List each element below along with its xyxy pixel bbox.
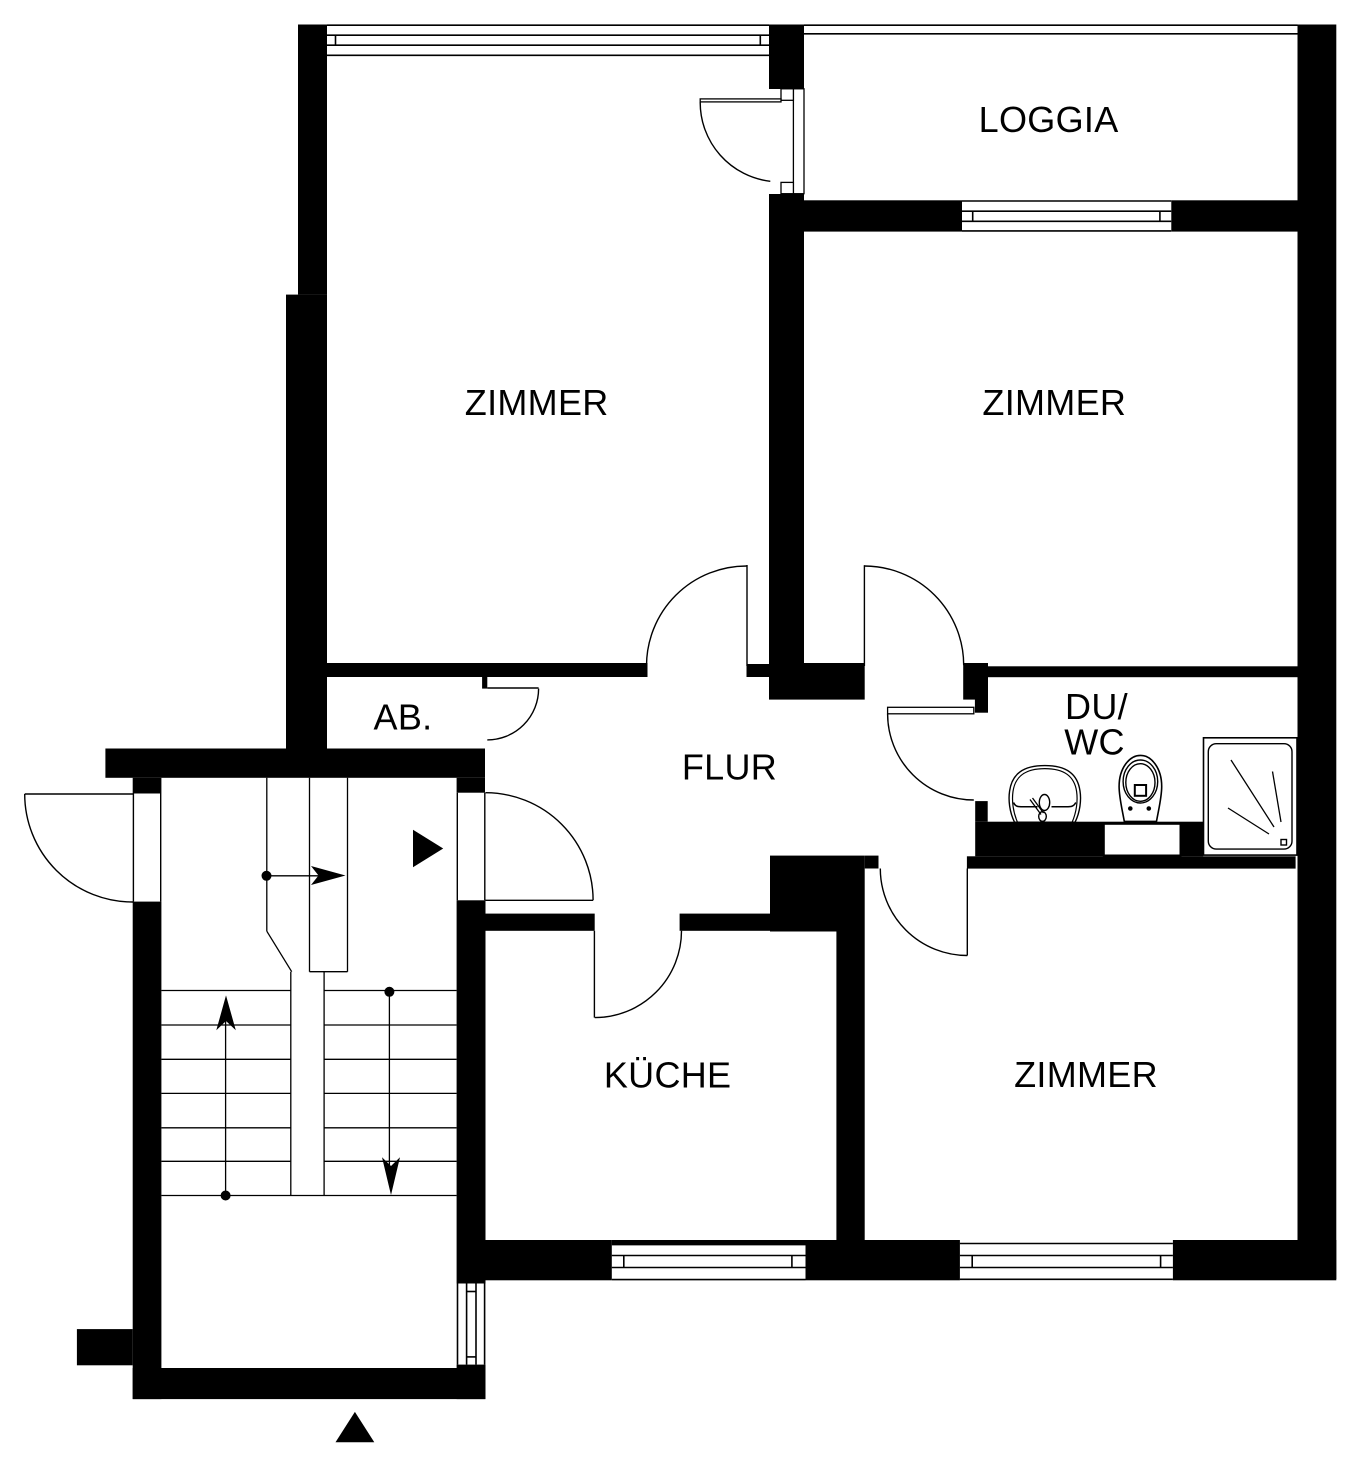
svg-text:WC: WC: [1064, 722, 1125, 763]
svg-text:AB.: AB.: [374, 696, 433, 737]
svg-text:KÜCHE: KÜCHE: [604, 1054, 732, 1095]
svg-text:ZIMMER: ZIMMER: [1014, 1054, 1158, 1095]
svg-text:LOGGIA: LOGGIA: [979, 99, 1119, 140]
svg-text:ZIMMER: ZIMMER: [982, 382, 1126, 423]
svg-text:FLUR: FLUR: [682, 747, 777, 788]
svg-text:ZIMMER: ZIMMER: [465, 382, 609, 423]
